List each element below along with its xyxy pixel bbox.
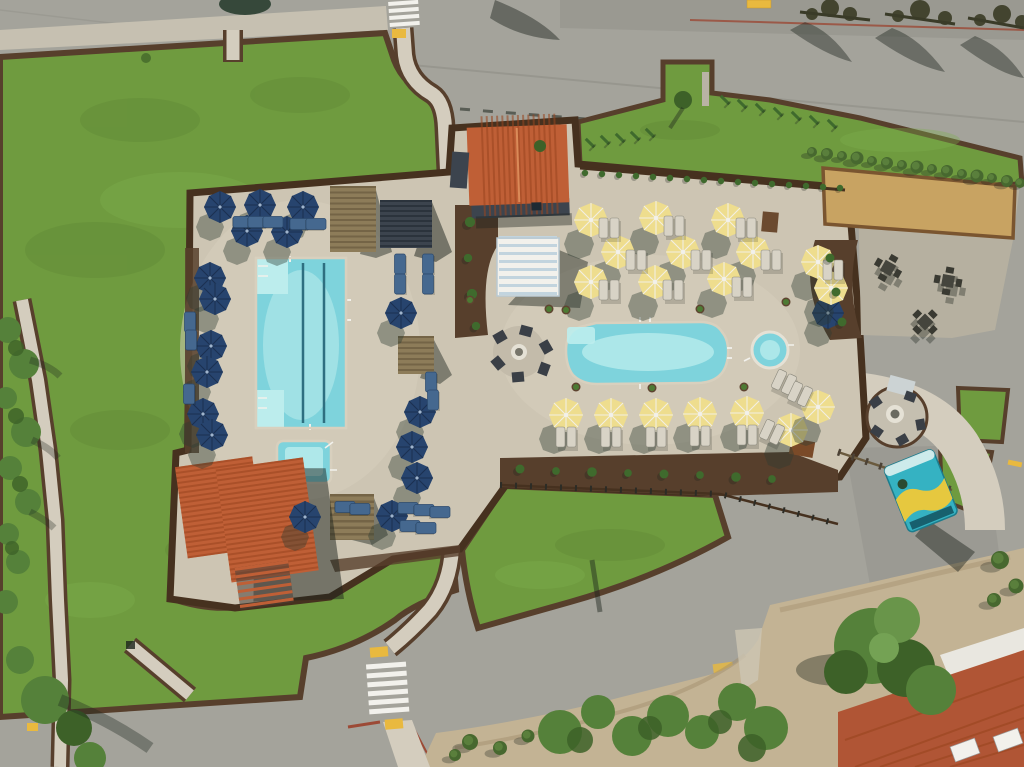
tactile-pad bbox=[370, 646, 389, 658]
blue-lounger bbox=[423, 254, 436, 275]
planter-pot bbox=[648, 384, 657, 393]
planter-pot bbox=[545, 305, 554, 314]
blue-lounger bbox=[186, 330, 199, 351]
pool-house bbox=[467, 124, 572, 228]
planter-pot bbox=[696, 305, 705, 314]
lounger-pair bbox=[732, 277, 754, 301]
lounger-pair bbox=[599, 280, 621, 304]
lounger-pair bbox=[736, 218, 758, 242]
yellow-structure bbox=[747, 0, 771, 8]
lounger-pair bbox=[556, 427, 578, 451]
tactile-pad bbox=[27, 723, 38, 731]
blue-lounger bbox=[184, 384, 197, 405]
lounger-pair bbox=[663, 280, 685, 304]
blue-lounger bbox=[423, 274, 436, 295]
spa-bench bbox=[760, 340, 780, 360]
shrub bbox=[141, 53, 151, 63]
stepping-stones bbox=[702, 72, 709, 106]
lounger-pair bbox=[761, 250, 783, 274]
entry-gate[interactable] bbox=[450, 151, 469, 188]
lounger-pair bbox=[664, 216, 686, 240]
aerial-photo: Aerial drone view of resort pool complex bbox=[0, 0, 1024, 767]
blue-lounger bbox=[262, 217, 283, 230]
blue-lounger bbox=[429, 507, 450, 520]
shrub bbox=[534, 140, 546, 152]
water-highlight bbox=[582, 333, 714, 371]
blue-lounger bbox=[305, 219, 326, 232]
pool-steps bbox=[256, 390, 284, 428]
planter-pot bbox=[466, 296, 475, 305]
pool-steps bbox=[567, 327, 595, 344]
aerial-photo-svg bbox=[0, 0, 1024, 767]
blue-lounger bbox=[428, 390, 441, 411]
pool-house-door bbox=[531, 202, 541, 210]
tactile-pad bbox=[385, 718, 404, 730]
blue-lounger bbox=[349, 504, 370, 517]
fire-pit-burner bbox=[515, 348, 523, 356]
lounger-pair bbox=[601, 427, 623, 451]
island-tree bbox=[674, 91, 692, 109]
freeform-pool bbox=[566, 317, 732, 389]
planter-pot bbox=[562, 306, 571, 315]
blue-lounger bbox=[395, 274, 408, 295]
lounger-pair bbox=[626, 250, 648, 274]
towel-kiosk bbox=[761, 211, 779, 232]
lounger-pair bbox=[646, 427, 668, 451]
planter-pot bbox=[572, 383, 581, 392]
lounger-pair bbox=[737, 425, 759, 449]
lounger-pair bbox=[599, 218, 621, 242]
planter-pot bbox=[740, 383, 749, 392]
tactile-pad bbox=[392, 29, 406, 38]
blue-lounger bbox=[415, 523, 436, 536]
lap-pool bbox=[256, 256, 351, 430]
blue-lounger bbox=[395, 254, 408, 275]
path-marker bbox=[126, 641, 135, 649]
lounger-pair bbox=[691, 250, 713, 274]
planter-pot bbox=[782, 298, 791, 307]
fire-burner bbox=[891, 410, 900, 419]
lounger-pair bbox=[690, 426, 712, 450]
